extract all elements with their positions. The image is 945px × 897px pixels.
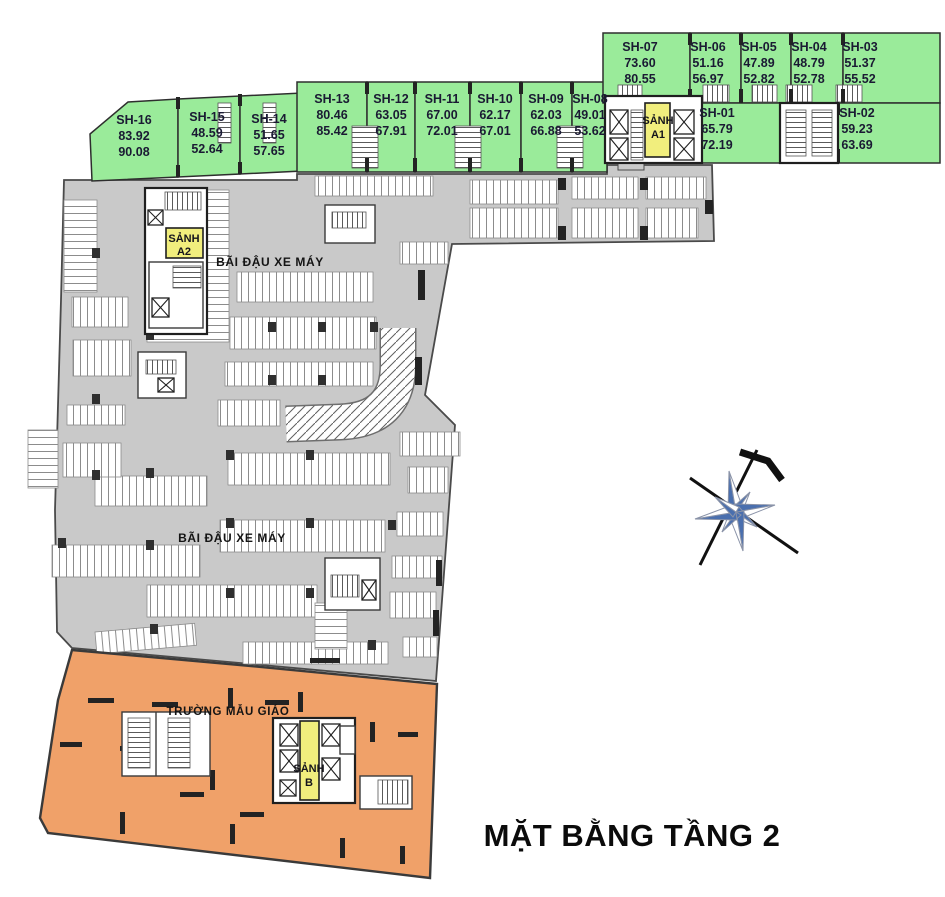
unit-sh16-area1: 83.92 [118,129,149,143]
stair-flight [786,110,806,156]
wall-tick [238,94,242,106]
column-marker [146,540,154,550]
wall-tick [413,158,417,172]
unit-sh10-area2: 67.01 [479,124,510,138]
unit-sh02-area2: 63.69 [841,138,872,152]
wall-tick [230,824,235,844]
wall-tick [265,700,289,705]
unit-sh12-area1: 63.05 [375,108,406,122]
parking-label-lower: BÃI ĐẬU XE MÁY [178,530,286,545]
stall-row [572,208,638,238]
unit-sh04-name: SH-04 [791,40,826,54]
column-marker [306,588,314,598]
unit-sh01-name: SH-01 [699,106,734,120]
lobby-a1-label-1: SẢNH [642,114,673,127]
stall-row [95,476,207,506]
stair-flight [378,780,408,804]
stall-row [390,592,436,618]
unit-sh15-area2: 52.64 [191,142,222,156]
stair-flight [332,212,366,228]
wall-tick [413,82,417,94]
unit-sh03-area2: 55.52 [844,72,875,86]
column-marker [146,468,154,478]
column-marker [388,520,396,530]
column-marker [370,322,378,332]
compass-rose [690,450,798,565]
unit-sh12-area2: 67.91 [375,124,406,138]
wall-tick [468,82,472,94]
stall-row [237,272,373,302]
stall-column [64,200,97,292]
closet [703,85,729,102]
unit-sh02-name: SH-02 [839,106,874,120]
unit-sh05-name: SH-05 [741,40,776,54]
column-marker [58,538,66,548]
wall-tick [789,89,793,103]
compass-star [695,471,775,551]
unit-sh06-area2: 56.97 [692,72,723,86]
lobby-b-label-1: SẢNH [293,762,324,775]
wall-tick [519,82,523,94]
column-marker [150,624,158,634]
stall-row [315,176,433,196]
column-marker [268,375,276,385]
wall-tick [739,89,743,103]
unit-sh01-area1: 65.79 [701,122,732,136]
parking-label-upper: BÃI ĐẬU XE MÁY [216,254,324,269]
unit-sh08-area1: 49.01 [574,108,605,122]
wall-tick [298,692,303,712]
column-marker [318,322,326,332]
wall-tick [640,226,648,240]
stall-row [572,177,638,199]
unit-sh05-area2: 52.82 [743,72,774,86]
wall-tick [240,812,264,817]
unit-sh12-name: SH-12 [373,92,408,106]
wall-tick [436,560,442,586]
wall-tick [640,178,648,190]
unit-sh07-area1: 73.60 [624,56,655,70]
stair-flight [128,718,150,768]
stall-row [400,432,460,456]
wall-tick [60,742,82,747]
unit-sh14-name: SH-14 [251,112,286,126]
wall-tick [370,722,375,742]
wall-tick [176,165,180,177]
wall-tick [400,846,405,864]
unit-sh14-area2: 57.65 [253,144,284,158]
floor-plan-drawing: SẢNH A1 SẢNH A2 [0,0,945,897]
unit-sh15-area1: 48.59 [191,126,222,140]
unit-sh10-area1: 62.17 [479,108,510,122]
wall-tick [365,158,369,172]
lobby-a2-label-2: A2 [177,246,191,258]
wall-tick [570,158,574,172]
column-marker [306,450,314,460]
unit-sh13-name: SH-13 [314,92,349,106]
stall-row [397,512,443,536]
stall-row [72,297,128,327]
unit-sh10-name: SH-10 [477,92,512,106]
unit-sh09-name: SH-09 [528,92,563,106]
wall-tick [228,688,233,708]
lobby-b-label-2: B [305,777,313,789]
stall-column [28,430,58,488]
column-marker [226,518,234,528]
wall-tick [468,158,472,172]
closet [752,85,777,102]
unit-sh11-area2: 72.01 [426,124,457,138]
unit-sh14-area1: 51.65 [253,128,284,142]
stall-row [230,317,376,349]
wall-tick [120,812,125,834]
floor-plan-page: SẢNH A1 SẢNH A2 [0,0,945,897]
lobby-a1-core: SẢNH A1 [605,96,702,163]
stair-flight [812,110,832,156]
column-marker [318,375,326,385]
unit-sh11-name: SH-11 [425,92,460,106]
column-marker [268,322,276,332]
unit-sh15-name: SH-15 [189,110,224,124]
column-marker [92,470,100,480]
stall-row [73,340,131,376]
unit-sh07-name: SH-07 [622,40,657,54]
unit-sh06-name: SH-06 [690,40,725,54]
lobby-a1-label-2: A1 [651,129,665,141]
unit-sh06-area1: 51.16 [692,56,723,70]
unit-sh08-name: SH-08 [572,92,607,106]
stall-row [470,208,558,238]
unit-sh16-area2: 90.08 [118,145,149,159]
stair-flight [331,575,359,597]
unit-sh07-area2: 80.55 [624,72,655,86]
column-marker [92,394,100,404]
unit-sh03-name: SH-03 [842,40,877,54]
kindergarten-stair [122,712,210,776]
unit-sh08-area2: 53.62 [574,124,605,138]
wall-tick [88,698,114,703]
unit-sh02-area1: 59.23 [841,122,872,136]
stall-row [67,405,125,425]
wall-tick [210,770,215,790]
compass-north-arrow [740,452,782,480]
stall-row [392,556,442,578]
wall-tick [415,357,422,385]
rowhouse-stair-core [780,103,838,163]
wall-tick [398,732,418,737]
page-title: MẶT BẰNG TẦNG 2 [484,818,781,853]
unit-sh13-area1: 80.46 [316,108,347,122]
stair-flight [631,110,643,160]
stall-row [470,180,558,204]
unit-sh01-area2: 72.19 [701,138,732,152]
wall-tick [180,792,204,797]
unit-sh04-area1: 48.79 [793,56,824,70]
lobby-a2-core: SẢNH A2 [145,188,207,334]
stall-row [646,208,698,238]
column-marker [92,248,100,258]
stall-row [646,177,706,199]
unit-sh13-area2: 85.42 [316,124,347,138]
service-room [340,726,355,754]
wall-tick [558,226,566,240]
wall-tick [340,838,345,858]
closet [836,85,862,102]
column-marker [306,518,314,528]
stall-row [218,400,280,426]
stall-row [225,362,373,386]
stair-flight [168,718,190,768]
stall-row [403,637,437,657]
column-marker [226,450,234,460]
unit-sh03-area1: 51.37 [844,56,875,70]
stair-flight [165,192,201,210]
unit-sh05-area1: 47.89 [743,56,774,70]
wall-tick [841,89,845,103]
column-marker [226,588,234,598]
kindergarten-label: TRƯỜNG MẪU GIÁO [167,705,290,718]
wall-tick [433,610,439,636]
column-marker [368,640,376,650]
unit-sh09-area2: 66.88 [530,124,561,138]
stall-row [408,467,448,493]
unit-sh11-area1: 67.00 [426,108,457,122]
stair-flight [146,360,176,374]
wall-tick [238,162,242,174]
unit-sh04-area2: 52.78 [793,72,824,86]
wall-tick [705,200,713,214]
stall-row [400,242,448,264]
unit-sh09-area1: 62.03 [530,108,561,122]
wall-tick [558,178,566,190]
wall-tick [418,270,425,300]
wall-tick [176,97,180,109]
wall-tick [365,82,369,94]
lobby-a2-label-1: SẢNH [168,232,199,245]
wall-tick [310,658,340,663]
unit-sh16-name: SH-16 [116,113,151,127]
stall-row [52,545,200,577]
kindergarten-area [40,650,437,878]
stair-flight [173,266,201,288]
wall-tick [519,158,523,172]
